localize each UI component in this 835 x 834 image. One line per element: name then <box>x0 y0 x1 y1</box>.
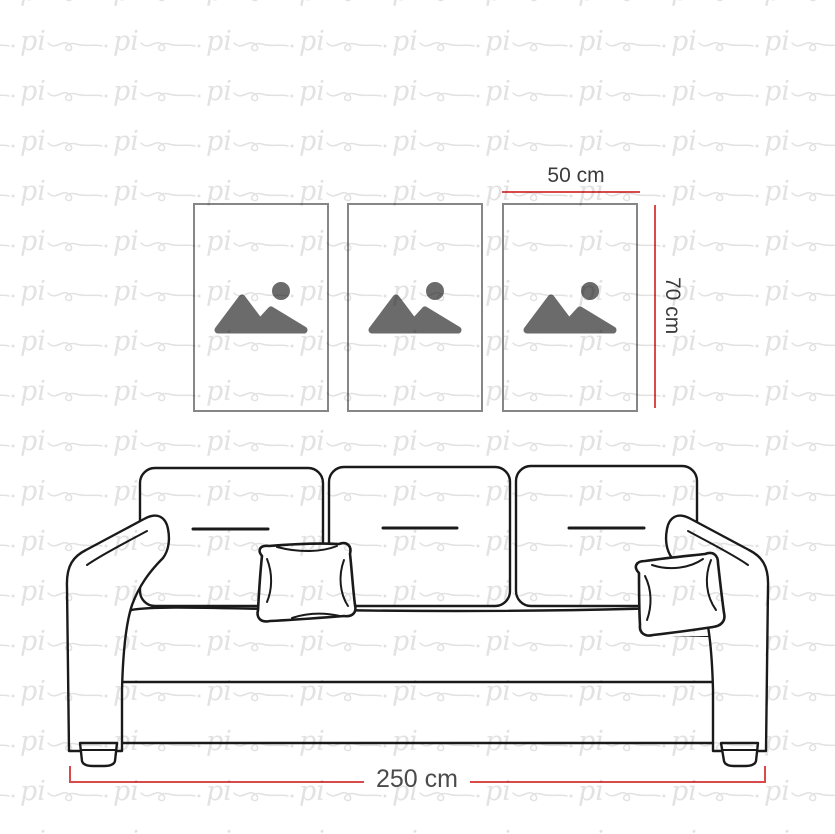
sofa-base <box>118 637 722 743</box>
image-placeholder-icon <box>366 281 464 335</box>
art-frame-1 <box>193 203 329 412</box>
art-frame-3 <box>502 203 638 412</box>
throw-pillow-left <box>258 543 356 621</box>
seat-cushion <box>120 607 714 642</box>
throw-pillow-right <box>636 553 725 636</box>
image-placeholder-icon <box>212 281 310 335</box>
back-cushion-2 <box>329 467 510 606</box>
left-foot <box>80 743 117 766</box>
image-placeholder-icon <box>521 281 619 335</box>
frame-width-line <box>502 191 640 193</box>
sofa-illustration <box>55 452 780 774</box>
art-frame-2 <box>347 203 483 412</box>
sofa-width-tick-left <box>69 766 71 783</box>
sofa-width-label: 250 cm <box>317 764 517 794</box>
frame-height-label: 70 cm <box>660 277 684 334</box>
sofa-width-tick-right <box>764 766 766 783</box>
product-size-diagram: 50 cm 70 cm <box>0 0 835 834</box>
frame-width-label: 50 cm <box>502 164 650 188</box>
right-foot <box>721 743 758 766</box>
frame-height-line <box>654 205 656 408</box>
